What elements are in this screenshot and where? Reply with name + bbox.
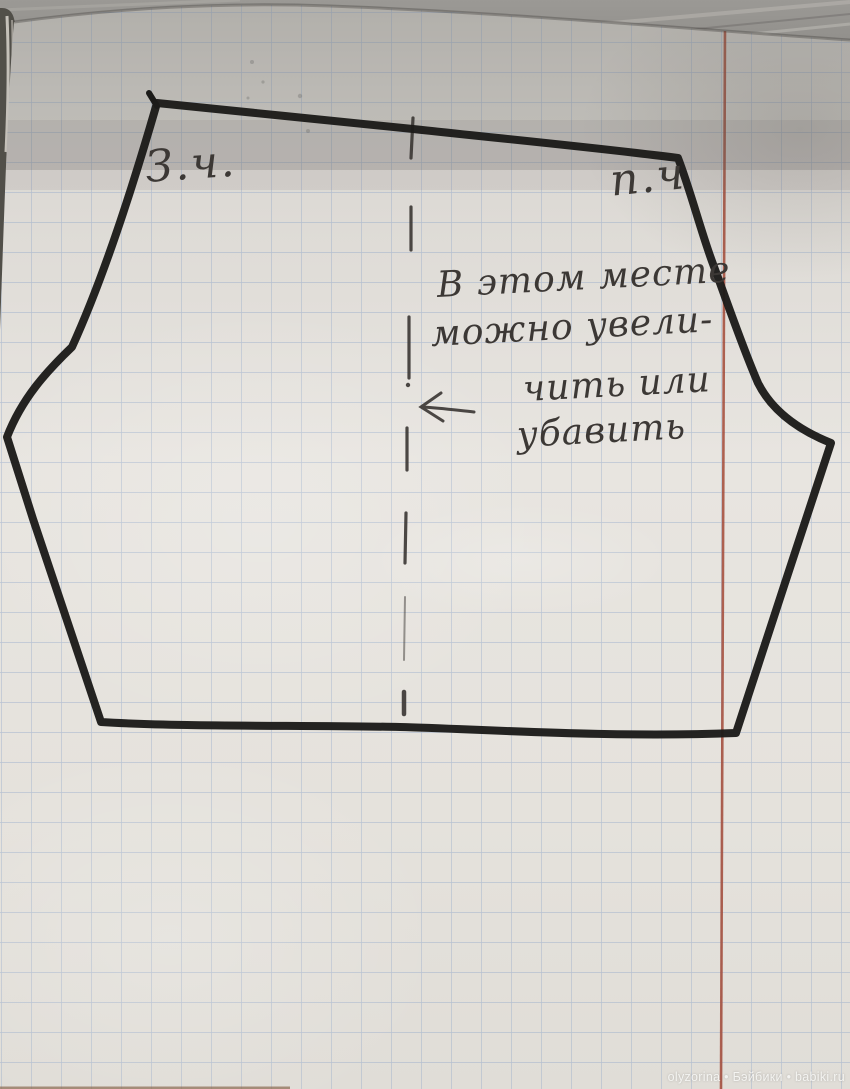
center-fold-dash	[404, 597, 405, 660]
notebook-page	[0, 0, 850, 1089]
watermark-text: olyzorina • Бэйбики • babiki.ru	[668, 1070, 845, 1084]
label-front-piece: п.ч	[608, 152, 688, 204]
center-fold-dash	[411, 118, 413, 158]
center-fold-dot	[406, 383, 410, 387]
pattern-sketch-drawing	[0, 0, 850, 1089]
center-fold-dash	[405, 513, 406, 563]
label-back-piece: З.ч.	[144, 140, 238, 190]
photo-sewing-pattern-notebook: З.ч. п.ч В этом месте можно увели- чить …	[0, 0, 850, 1089]
crease-highlight	[360, 500, 680, 620]
annotation-line: чить или	[522, 362, 712, 408]
annotation-line: убавить	[516, 409, 687, 454]
